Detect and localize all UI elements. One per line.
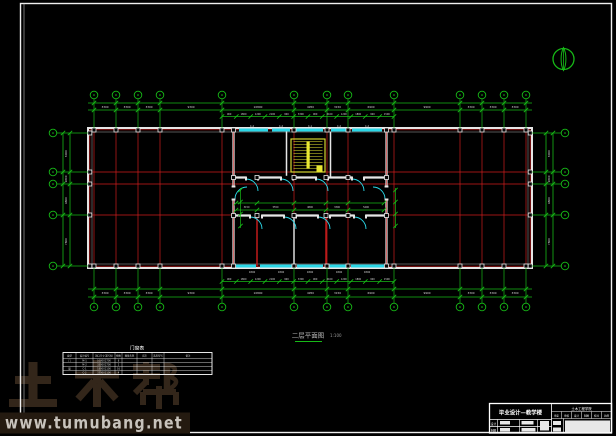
svg-text:M-2: M-2 bbox=[82, 364, 87, 367]
svg-text:4950: 4950 bbox=[307, 105, 314, 109]
svg-text:1500: 1500 bbox=[384, 113, 390, 116]
svg-text:900: 900 bbox=[370, 278, 375, 281]
dim-left: 6000180048007800 bbox=[49, 129, 88, 270]
svg-text:4800: 4800 bbox=[64, 197, 68, 204]
svg-text:4800: 4800 bbox=[547, 197, 551, 204]
svg-text:5550: 5550 bbox=[273, 206, 279, 209]
svg-text:1200: 1200 bbox=[255, 278, 261, 281]
svg-text:2100: 2100 bbox=[269, 278, 275, 281]
svg-text:1800: 1800 bbox=[241, 113, 247, 116]
dim-corridor: 31505550480033005400 bbox=[234, 188, 398, 228]
svg-text:2100: 2100 bbox=[269, 113, 275, 116]
svg-text:3300: 3300 bbox=[489, 105, 496, 109]
floor-plan bbox=[88, 128, 532, 268]
svg-text:窗: 窗 bbox=[68, 367, 71, 371]
structural-grid bbox=[90, 130, 531, 267]
svg-text:1800: 1800 bbox=[355, 278, 361, 281]
svg-text:洞口尺寸(宽X高): 洞口尺寸(宽X高) bbox=[95, 354, 113, 358]
svg-text:页次: 页次 bbox=[142, 354, 147, 358]
svg-text:1000X2700: 1000X2700 bbox=[97, 360, 111, 363]
title-block-project: 毕业设计—教学楼 bbox=[499, 409, 543, 417]
svg-text:3300: 3300 bbox=[123, 291, 130, 295]
svg-text:4800: 4800 bbox=[307, 206, 313, 209]
svg-text:1200: 1200 bbox=[341, 113, 347, 116]
schedule-title: 门窗表 bbox=[130, 345, 145, 352]
svg-text:7800: 7800 bbox=[547, 238, 551, 245]
svg-text:1200: 1200 bbox=[255, 113, 261, 116]
svg-text:1200: 1200 bbox=[341, 278, 347, 281]
svg-text:900: 900 bbox=[313, 113, 318, 116]
svg-text:3150: 3150 bbox=[244, 206, 250, 209]
svg-text:C-2: C-2 bbox=[279, 124, 284, 128]
svg-text:3150: 3150 bbox=[334, 105, 341, 109]
svg-text:2: 2 bbox=[118, 364, 120, 367]
svg-text:1800: 1800 bbox=[336, 270, 343, 274]
svg-text:4: 4 bbox=[118, 372, 120, 375]
walls bbox=[88, 128, 532, 268]
svg-text:C-2: C-2 bbox=[250, 124, 255, 128]
svg-text:3300: 3300 bbox=[123, 105, 130, 109]
svg-text:4950: 4950 bbox=[307, 291, 314, 295]
svg-text:10800: 10800 bbox=[254, 105, 263, 109]
svg-text:3300: 3300 bbox=[101, 105, 108, 109]
svg-text:1800: 1800 bbox=[278, 270, 285, 274]
svg-text:C-2: C-2 bbox=[365, 124, 370, 128]
svg-text:1800: 1800 bbox=[307, 270, 314, 274]
svg-text:1800: 1800 bbox=[64, 175, 68, 182]
svg-text:樘数: 樘数 bbox=[116, 354, 121, 358]
dim-top: 3300330033009300108004950315069009900330… bbox=[88, 91, 532, 128]
svg-text:900: 900 bbox=[313, 278, 318, 281]
svg-text:900: 900 bbox=[370, 113, 375, 116]
svg-text:C-2: C-2 bbox=[337, 124, 342, 128]
svg-text:3300: 3300 bbox=[101, 291, 108, 295]
column-markers bbox=[88, 128, 532, 268]
svg-text:C-2: C-2 bbox=[82, 372, 87, 375]
svg-text:C-1: C-1 bbox=[308, 124, 313, 128]
drawing-title: 二层平面图 1:100 bbox=[292, 332, 342, 342]
svg-text:备注: 备注 bbox=[186, 354, 191, 358]
svg-text:选用型号: 选用型号 bbox=[153, 354, 163, 358]
svg-text:审定: 审定 bbox=[554, 414, 560, 418]
svg-text:1800: 1800 bbox=[364, 270, 371, 274]
svg-text:16: 16 bbox=[117, 368, 121, 371]
svg-text:M-1: M-1 bbox=[82, 360, 87, 363]
svg-text:审核: 审核 bbox=[564, 414, 570, 418]
svg-text:类型: 类型 bbox=[67, 354, 72, 358]
svg-text:6900: 6900 bbox=[367, 105, 374, 109]
svg-text:3300: 3300 bbox=[145, 291, 152, 295]
svg-text:1800: 1800 bbox=[355, 113, 361, 116]
svg-text:C-1: C-1 bbox=[82, 368, 87, 371]
svg-text:设计: 设计 bbox=[574, 414, 580, 418]
svg-text:3300: 3300 bbox=[489, 291, 496, 295]
svg-text:3300: 3300 bbox=[145, 105, 152, 109]
svg-text:图集名称: 图集名称 bbox=[125, 354, 135, 358]
svg-text:3300: 3300 bbox=[298, 113, 304, 116]
svg-text:校对: 校对 bbox=[594, 414, 600, 418]
svg-text:3300: 3300 bbox=[467, 291, 474, 295]
svg-text:900: 900 bbox=[227, 278, 232, 281]
title-block-left-row1: 设计 bbox=[491, 422, 497, 426]
svg-text:1500: 1500 bbox=[384, 278, 390, 281]
watermark-band: www.tumubang.net bbox=[0, 413, 190, 434]
title-block: 毕业设计—教学楼 设计 制图 土木工程学院 审定审核设计制图校对比例 bbox=[490, 404, 612, 434]
svg-text:6000: 6000 bbox=[64, 150, 68, 157]
title-block-org: 土木工程学院 bbox=[571, 406, 592, 411]
schedule-grid: 类型设计编号洞口尺寸(宽X高)樘数图集名称页次选用型号备注门M-11000X27… bbox=[63, 353, 212, 375]
svg-text:6000: 6000 bbox=[547, 150, 551, 157]
sill-labels: 18001800180018001800 bbox=[249, 270, 371, 274]
svg-text:3300: 3300 bbox=[298, 278, 304, 281]
svg-text:3300: 3300 bbox=[467, 105, 474, 109]
svg-text:制图: 制图 bbox=[584, 414, 590, 418]
drawing-title-text: 二层平面图 bbox=[292, 332, 325, 340]
dim-right: 6000180048007800 bbox=[532, 129, 569, 270]
svg-text:3150: 3150 bbox=[334, 291, 341, 295]
svg-text:3300: 3300 bbox=[511, 291, 518, 295]
svg-text:5400: 5400 bbox=[363, 206, 369, 209]
staircase bbox=[291, 139, 325, 172]
cad-canvas[interactable]: 3300330033009300108004950315069009900330… bbox=[0, 0, 616, 436]
title-block-left-row2: 制图 bbox=[491, 429, 497, 433]
watermark-url: www.tumubang.net bbox=[5, 414, 183, 433]
svg-text:2100: 2100 bbox=[327, 278, 333, 281]
dim-bottom: 3300330033009300108004950315069009900330… bbox=[88, 268, 532, 311]
north-arrow-icon bbox=[553, 48, 574, 71]
svg-text:6900: 6900 bbox=[367, 291, 374, 295]
svg-text:7800: 7800 bbox=[64, 238, 68, 245]
title-block-cells: 审定审核设计制图校对比例 bbox=[554, 412, 610, 419]
watermark-brand-glyphs bbox=[9, 360, 176, 409]
svg-text:9900: 9900 bbox=[423, 291, 430, 295]
svg-text:3300: 3300 bbox=[334, 206, 340, 209]
svg-text:900: 900 bbox=[227, 113, 232, 116]
svg-text:设计编号: 设计编号 bbox=[80, 354, 90, 358]
svg-text:900: 900 bbox=[284, 113, 289, 116]
svg-text:10800: 10800 bbox=[254, 291, 263, 295]
svg-text:3300X2100: 3300X2100 bbox=[97, 372, 111, 375]
svg-text:1800: 1800 bbox=[241, 278, 247, 281]
svg-text:3300X2700: 3300X2700 bbox=[97, 364, 111, 367]
svg-text:3300: 3300 bbox=[511, 105, 518, 109]
svg-text:1800: 1800 bbox=[547, 175, 551, 182]
svg-text:门: 门 bbox=[68, 359, 71, 363]
svg-text:9900: 9900 bbox=[423, 105, 430, 109]
svg-text:1800: 1800 bbox=[249, 270, 256, 274]
svg-text:1800X2100: 1800X2100 bbox=[97, 368, 111, 371]
svg-text:比例: 比例 bbox=[604, 414, 610, 418]
svg-text:8: 8 bbox=[118, 360, 120, 363]
svg-text:9300: 9300 bbox=[187, 105, 194, 109]
svg-text:2100: 2100 bbox=[327, 113, 333, 116]
svg-text:900: 900 bbox=[284, 278, 289, 281]
drawing-scale-text: 1:100 bbox=[330, 333, 342, 338]
svg-text:9300: 9300 bbox=[187, 291, 194, 295]
